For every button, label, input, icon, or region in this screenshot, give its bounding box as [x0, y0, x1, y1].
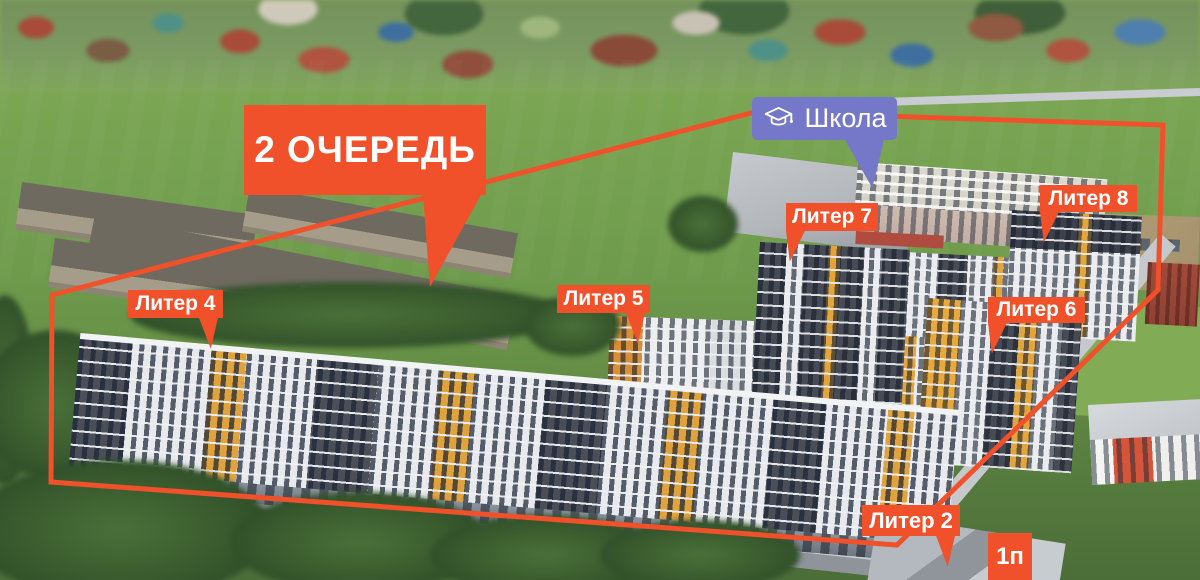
label-liter-7: Литер 7 [786, 203, 878, 231]
phase-2-label-text: 2 ОЧЕРЕДЬ [254, 129, 476, 171]
label-liter-8-text: Литер 8 [1049, 187, 1129, 211]
brick-building [1145, 262, 1200, 327]
school-badge: Школа [752, 97, 897, 140]
label-liter-7-text: Литер 7 [792, 205, 872, 229]
residential-block-liter7 [751, 242, 910, 418]
kindergarten-building [1090, 434, 1200, 485]
label-entrance-1p-text: 1п [996, 543, 1024, 571]
label-liter-2-text: Литер 2 [869, 508, 953, 534]
label-liter-6: Литер 6 [988, 297, 1085, 323]
label-liter-5: Литер 5 [557, 285, 650, 313]
label-liter-6-text: Литер 6 [997, 298, 1077, 322]
label-liter-2: Литер 2 [862, 505, 960, 536]
phase-2-label: 2 ОЧЕРЕДЬ [244, 105, 486, 195]
label-liter-4-text: Литер 4 [136, 292, 216, 316]
label-liter-4: Литер 4 [128, 290, 223, 318]
trees [668, 196, 738, 252]
school-badge-text: Школа [804, 103, 886, 134]
label-entrance-1p: 1п [988, 533, 1032, 580]
label-liter-5-text: Литер 5 [564, 287, 644, 311]
label-liter-8: Литер 8 [1040, 185, 1137, 212]
graduation-cap-icon [762, 102, 795, 135]
masterplan-scene: 2 ОЧЕРЕДЬ Школа Литер 4 Литер 5 Литер 6 … [0, 0, 1200, 580]
